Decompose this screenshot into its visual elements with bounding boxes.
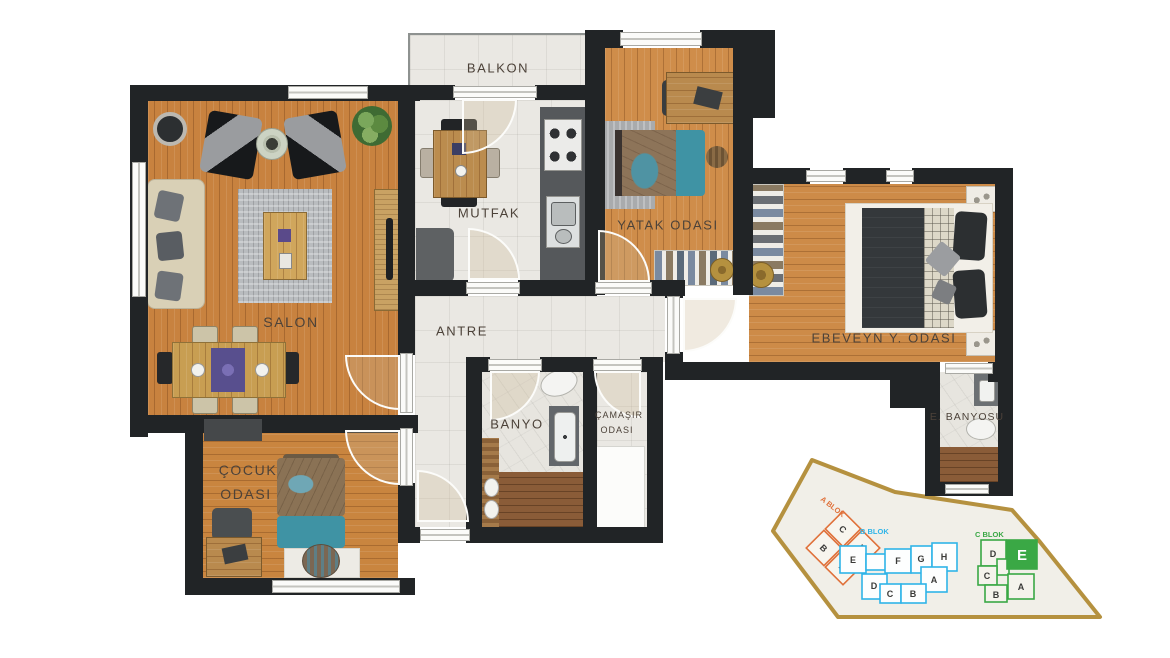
wall — [130, 85, 420, 101]
wall — [398, 280, 468, 296]
wall — [398, 85, 415, 355]
unit-label: F — [895, 556, 901, 566]
unit-label: A — [931, 575, 938, 585]
desk — [206, 537, 262, 577]
door-sill — [595, 282, 652, 294]
duvet — [277, 458, 345, 516]
towel — [484, 500, 499, 519]
room-label-banyo: BANYO — [490, 417, 544, 432]
unit-label: C — [984, 571, 991, 581]
bathroom-vanity — [549, 406, 579, 466]
wall — [995, 168, 1013, 380]
wall — [647, 357, 663, 543]
shower-floor — [499, 472, 583, 527]
basket — [710, 258, 734, 282]
unit-label: E — [850, 555, 856, 565]
wall — [470, 527, 663, 543]
desk-chair — [212, 508, 252, 540]
round-chair — [302, 544, 340, 578]
sofa-pillow — [154, 270, 184, 301]
side-table — [256, 128, 288, 160]
window — [288, 86, 368, 99]
door-sill — [667, 296, 680, 354]
dining-chair — [157, 352, 173, 384]
towel — [484, 478, 499, 497]
duvet — [862, 208, 924, 328]
laptop — [693, 86, 723, 110]
unit-label: G — [917, 554, 924, 564]
kitchen-sink — [546, 196, 580, 248]
unit-label: C — [887, 589, 894, 599]
blanket — [676, 130, 705, 196]
room-label-yatak: YATAK ODASI — [617, 218, 718, 233]
unit-label: A — [1018, 582, 1025, 592]
pouf — [706, 146, 728, 168]
armchair — [199, 110, 263, 180]
tv — [386, 218, 393, 280]
room-label-cocuk-1: ÇOCUK — [219, 462, 278, 478]
door-sill — [400, 353, 413, 413]
sink — [554, 412, 576, 462]
stove — [544, 119, 582, 171]
wall — [185, 433, 203, 595]
door-sill — [400, 428, 413, 486]
table-decor — [278, 229, 291, 242]
window — [806, 170, 846, 182]
wall — [583, 357, 597, 543]
room-label-mutfak: MUTFAK — [458, 206, 520, 221]
dining-chair — [232, 396, 258, 414]
wall — [843, 168, 890, 184]
door-sill — [488, 359, 542, 371]
unit-label: D — [990, 549, 997, 559]
entrance-door-sill — [420, 529, 470, 541]
wall — [733, 168, 810, 184]
unit-label: B — [993, 590, 1000, 600]
wall — [398, 527, 420, 543]
single-bed — [615, 130, 705, 196]
duvet — [622, 130, 676, 196]
wall — [733, 30, 753, 295]
wardrobe — [204, 419, 262, 441]
sink — [979, 380, 995, 402]
wall — [518, 280, 597, 296]
block-c-label: C BLOK — [975, 530, 1004, 539]
sofa-pillow — [153, 190, 184, 223]
wall — [998, 380, 1013, 482]
plate — [255, 363, 269, 377]
sofa-pillow — [156, 231, 185, 262]
nightstand — [966, 330, 996, 356]
wall — [925, 380, 940, 495]
room-label-ebeveyn: EBEVEYN Y. ODASI — [811, 331, 956, 346]
dining-table — [172, 342, 286, 398]
plate — [455, 165, 467, 177]
room-label-camasir-2: ODASI — [600, 425, 633, 435]
unit-label: H — [941, 552, 948, 562]
table-runner — [211, 348, 245, 392]
door-sill — [945, 363, 993, 374]
door-sill — [466, 282, 520, 294]
dining-chair — [192, 396, 218, 414]
headboard — [615, 130, 622, 196]
sofa — [147, 179, 205, 309]
shower-floor — [940, 447, 998, 482]
sink-basin — [555, 229, 572, 244]
block-c: D C B A E C BLOK — [975, 530, 1037, 602]
room-label-salon: SALON — [263, 314, 318, 330]
coffee-table — [263, 212, 307, 280]
pillow — [952, 269, 987, 319]
room-label-antre: ANTRE — [436, 324, 488, 339]
room-label-camasir-1: ÇAMAŞIR — [595, 410, 643, 420]
refrigerator — [416, 228, 454, 282]
door-sill — [453, 86, 537, 98]
floor-plan: C D B A A BLOK E F G H D C B — [0, 0, 1170, 658]
window — [886, 170, 914, 182]
door-swing — [683, 298, 737, 352]
desk — [666, 72, 736, 124]
blanket — [277, 516, 345, 548]
wall — [415, 85, 455, 100]
unit-label-highlighted: E — [1017, 547, 1027, 564]
armchair — [283, 110, 347, 180]
door-sill — [593, 359, 642, 371]
window — [272, 580, 400, 593]
laptop — [222, 544, 249, 565]
wall — [665, 352, 683, 380]
unit-label: D — [871, 581, 878, 591]
block-b-label: B BLOK — [860, 527, 889, 536]
room-label-balkon: BALKON — [467, 61, 529, 76]
window — [945, 484, 989, 494]
wall — [585, 30, 623, 48]
room-label-ebanyosu: E. BANYOSU — [930, 411, 1004, 423]
sink-basin — [551, 202, 576, 226]
unit-label: B — [910, 589, 917, 599]
single-bed — [277, 452, 345, 548]
potted-plant — [352, 106, 392, 146]
table-decor — [279, 253, 292, 269]
kitchen-chair — [485, 148, 500, 178]
window — [620, 32, 702, 46]
washing-machine — [589, 446, 645, 529]
double-bed — [845, 203, 993, 333]
plate — [191, 363, 205, 377]
wall-clock — [153, 112, 187, 146]
room-label-cocuk-2: ODASI — [220, 486, 272, 502]
bathroom-cabinet — [482, 438, 499, 527]
window — [132, 162, 146, 297]
